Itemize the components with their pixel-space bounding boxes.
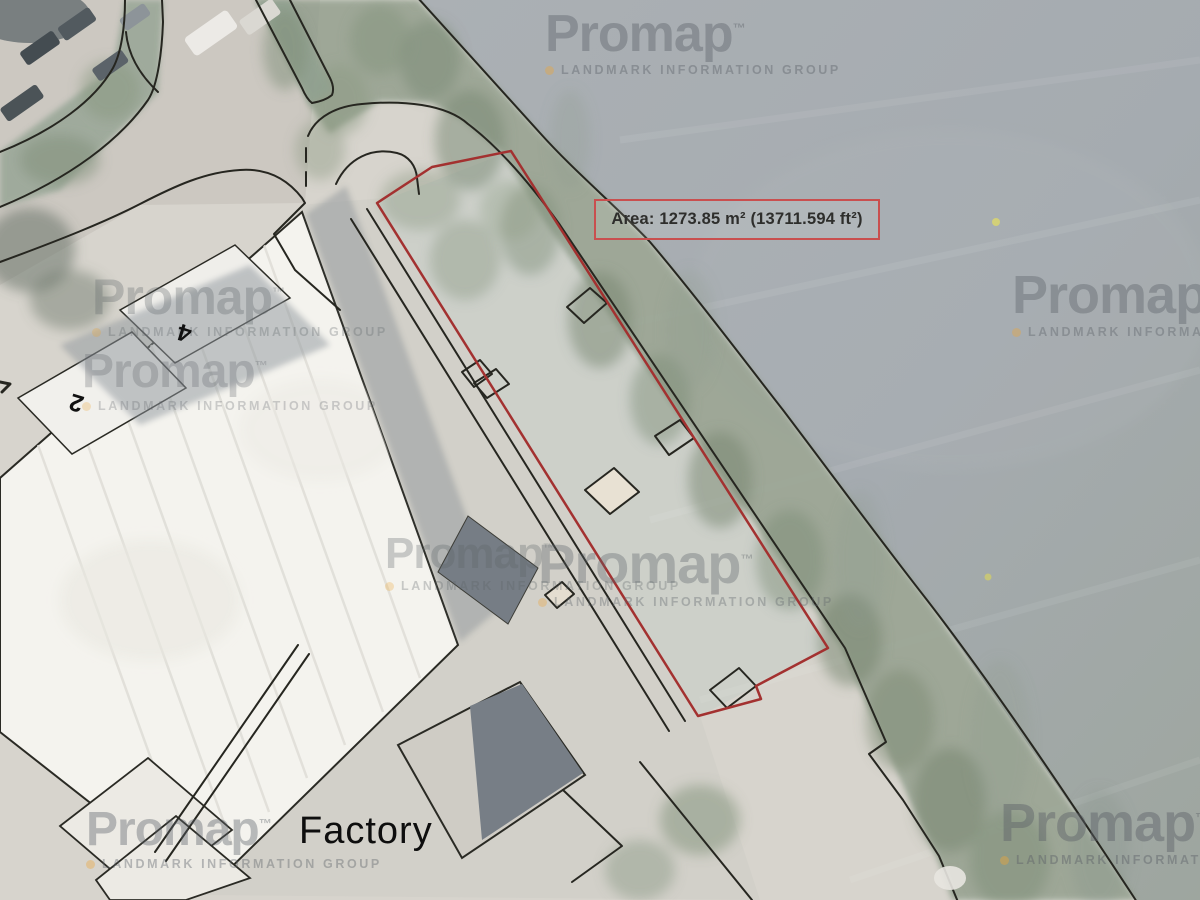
water-marker-speck: [992, 218, 1000, 226]
map-canvas[interactable]: Promap™ LANDMARK INFORMATION GROUP Proma…: [0, 0, 1200, 900]
watermark-dot-icon: [92, 328, 101, 337]
watermark-dot-icon: [538, 598, 547, 607]
watermark-left-lower: Promap™ LANDMARK INFORMATION GROUP: [82, 348, 378, 413]
boat: [934, 866, 966, 890]
watermark-dot-icon: [1012, 328, 1021, 337]
watermark-dot-icon: [86, 860, 95, 869]
watermark-dot-icon: [1000, 856, 1009, 865]
watermark-dot-icon: [385, 582, 394, 591]
watermark-left-upper: Promap™ LANDMARK INFORMATION GROUP: [92, 272, 388, 339]
watermark-top: Promap™ LANDMARK INFORMATION GROUP: [545, 8, 841, 77]
watermark-bottom-right: Promap™ LANDMARK INFORMATION GROUP: [1000, 796, 1200, 867]
watermark-right: Promap™ LANDMARK INFORMATION GROUP: [1012, 268, 1200, 339]
trademark-symbol: ™: [733, 21, 746, 36]
water-marker-speck-2: [985, 574, 992, 581]
area-measurement-label[interactable]: Area: 1273.85 m² (13711.594 ft²): [594, 199, 880, 240]
aerial-basemap: [0, 0, 1200, 900]
factory-label: Factory: [299, 810, 433, 853]
watermark-dot-icon: [545, 66, 554, 75]
watermark-centre: Promap™ LANDMARK INFORMATION GROUP: [538, 536, 834, 609]
